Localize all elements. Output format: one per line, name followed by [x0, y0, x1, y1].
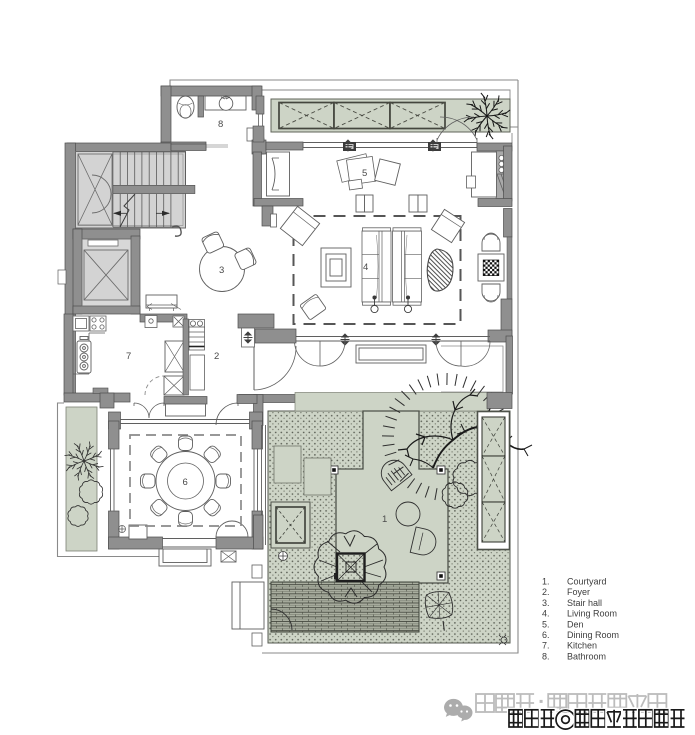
svg-text:Den: Den: [567, 619, 584, 629]
svg-text:7: 7: [126, 351, 131, 362]
svg-text:4: 4: [363, 262, 368, 273]
svg-text:6.: 6.: [542, 630, 550, 640]
svg-text:8: 8: [218, 119, 223, 130]
svg-text:Courtyard: Courtyard: [567, 577, 607, 587]
svg-text:5.: 5.: [542, 619, 550, 629]
svg-text:1: 1: [382, 514, 387, 525]
svg-text:5: 5: [362, 168, 367, 179]
svg-text:3.: 3.: [542, 598, 550, 608]
svg-text:1.: 1.: [542, 577, 550, 587]
svg-text:2.: 2.: [542, 587, 550, 597]
svg-text:3: 3: [219, 265, 224, 276]
svg-text:8.: 8.: [542, 651, 550, 661]
svg-text:4.: 4.: [542, 609, 550, 619]
svg-text:2: 2: [214, 351, 219, 362]
svg-text:Stair hall: Stair hall: [567, 598, 602, 608]
svg-text:7.: 7.: [542, 641, 550, 651]
svg-text:Kitchen: Kitchen: [567, 641, 597, 651]
svg-text:Living Room: Living Room: [567, 609, 617, 619]
svg-text:Foyer: Foyer: [567, 587, 590, 597]
svg-text:Bathroom: Bathroom: [567, 651, 606, 661]
svg-text:Dining Room: Dining Room: [567, 630, 619, 640]
svg-text:6: 6: [183, 477, 188, 488]
